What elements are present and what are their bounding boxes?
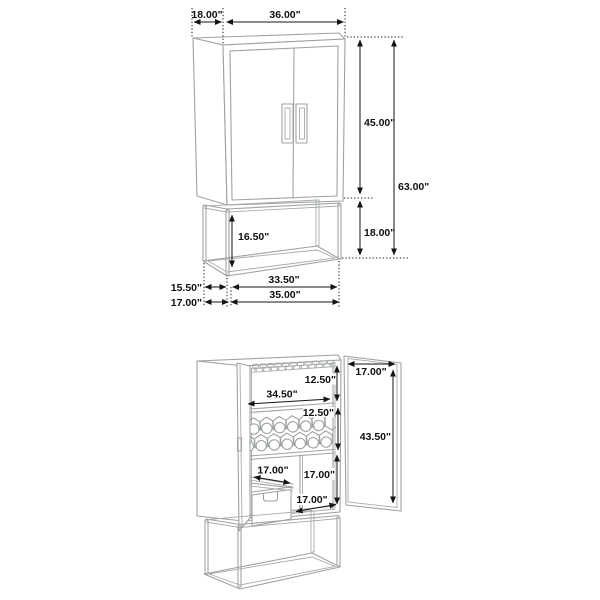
dim-base-depth: 15.50" (171, 282, 226, 294)
dimension-drawing: 18.00" 36.00" 45.00" 63.00" 18.00" 16.50… (0, 0, 600, 600)
open-cabinet-figure: 12.50" 34.50" 12.50" 17.00" 17.00" 17.00… (197, 355, 401, 589)
dim-total-height: 63.00" (394, 40, 429, 255)
closed-cabinet-base-frame (203, 200, 341, 276)
dim-door-height: 45.00" (360, 40, 395, 194)
dim-cabinet-depth-label: 18.00" (191, 9, 222, 21)
dim-door-height-label: 45.00" (364, 117, 395, 129)
dim-base-depth-label: 15.50" (171, 282, 202, 294)
dim-cabinet-width-label: 36.00" (269, 9, 300, 21)
dim-floor-width: 35.00" (231, 289, 339, 302)
dim-wine-rack-height-label: 12.50" (303, 407, 334, 419)
closed-cabinet-body (193, 33, 345, 205)
dim-floor-width-label: 35.00" (269, 289, 300, 301)
furniture-dimension-sheet: 18.00" 36.00" 45.00" 63.00" 18.00" 16.50… (0, 0, 600, 600)
left-door-open (237, 363, 250, 531)
dim-base-clearance: 16.50" (232, 215, 269, 267)
dim-floor-depth: 17.00" (171, 297, 229, 309)
dim-door-panel-height-label: 43.50" (360, 431, 391, 443)
dim-base-height: 18.00" (360, 201, 395, 255)
dim-base-clearance-label: 16.50" (238, 231, 269, 243)
dim-base-height-label: 18.00" (364, 227, 395, 239)
dim-open-door-width-label: 17.00" (355, 366, 386, 378)
dim-floor-depth-label: 17.00" (171, 297, 202, 309)
dim-top-compartment-height-label: 12.50" (305, 374, 336, 386)
dim-cabinet-width: 36.00" (227, 9, 344, 22)
dim-base-width: 33.50" (233, 274, 338, 287)
dim-lower-compartment-height-label: 17.00" (304, 469, 335, 481)
dim-total-height-label: 63.00" (398, 181, 429, 193)
dim-drawer-depth-label: 17.00" (257, 465, 288, 477)
dim-bottom-opening-width-label: 17.00" (296, 494, 327, 506)
dim-base-width-label: 33.50" (268, 274, 299, 286)
closed-cabinet-figure: 18.00" 36.00" 45.00" 63.00" 18.00" 16.50… (171, 8, 430, 309)
dim-shelf-width-label: 34.50" (266, 389, 297, 401)
dim-cabinet-depth: 18.00" (191, 9, 222, 22)
